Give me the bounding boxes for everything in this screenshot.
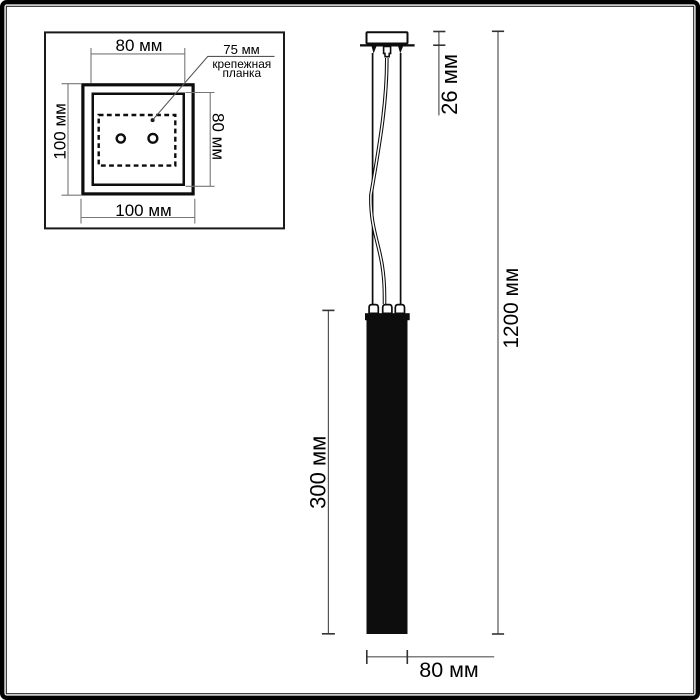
svg-text:26 мм: 26 мм: [437, 54, 462, 115]
svg-text:80 мм: 80 мм: [115, 36, 162, 55]
svg-text:100 мм: 100 мм: [115, 201, 171, 220]
svg-text:1200 мм: 1200 мм: [500, 268, 523, 349]
svg-text:планка: планка: [222, 66, 261, 80]
svg-text:80 мм: 80 мм: [419, 658, 478, 682]
svg-text:80 мм: 80 мм: [209, 113, 228, 160]
svg-text:100 мм: 100 мм: [50, 103, 69, 159]
svg-text:75 мм: 75 мм: [223, 42, 259, 57]
svg-text:300 мм: 300 мм: [306, 436, 331, 509]
